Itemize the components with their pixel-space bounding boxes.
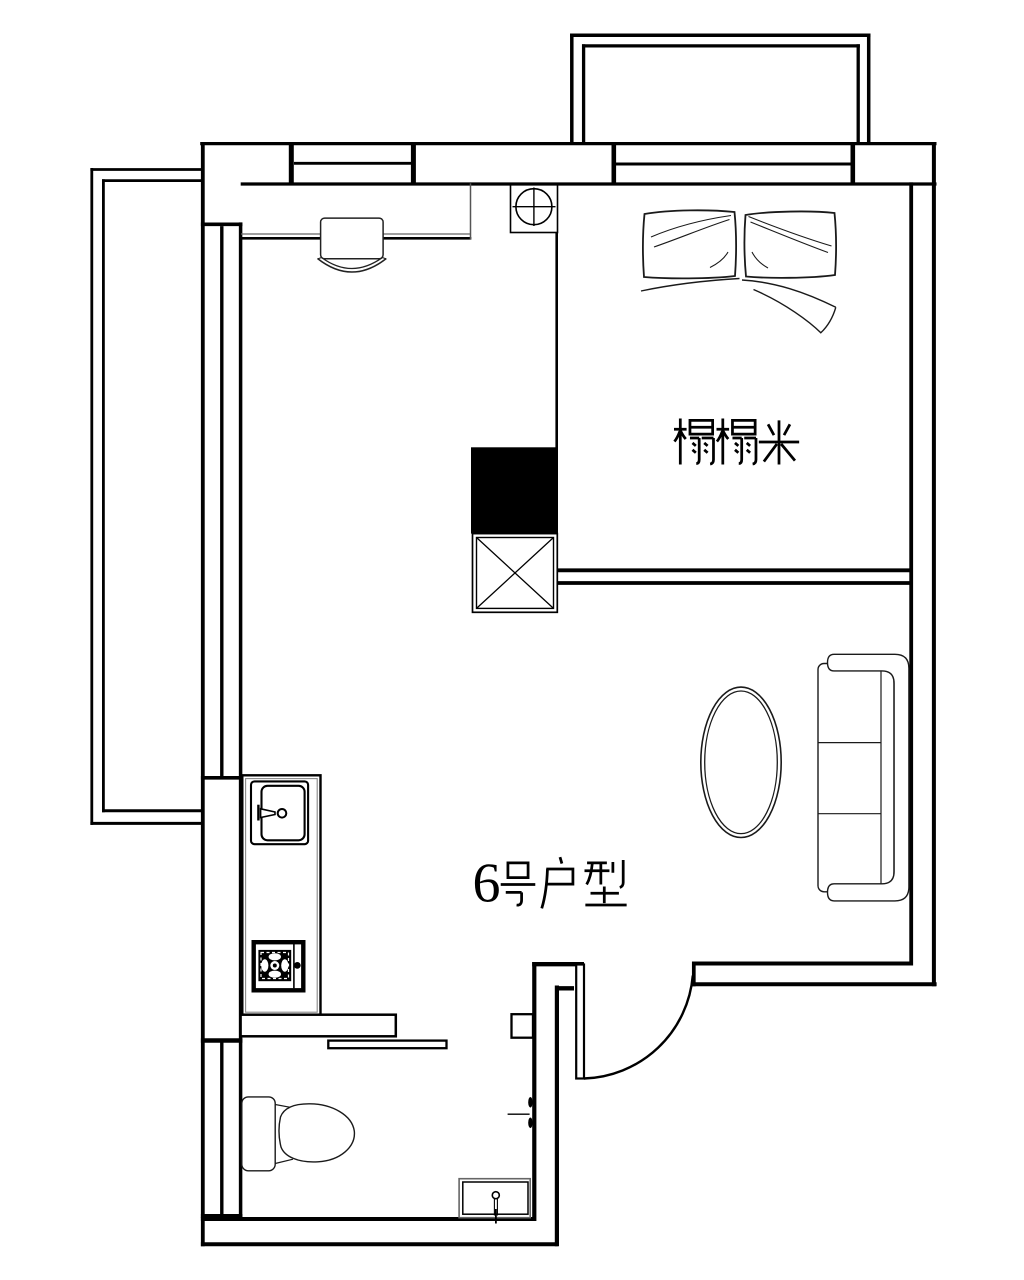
svg-text:6: 6 [473, 853, 501, 915]
